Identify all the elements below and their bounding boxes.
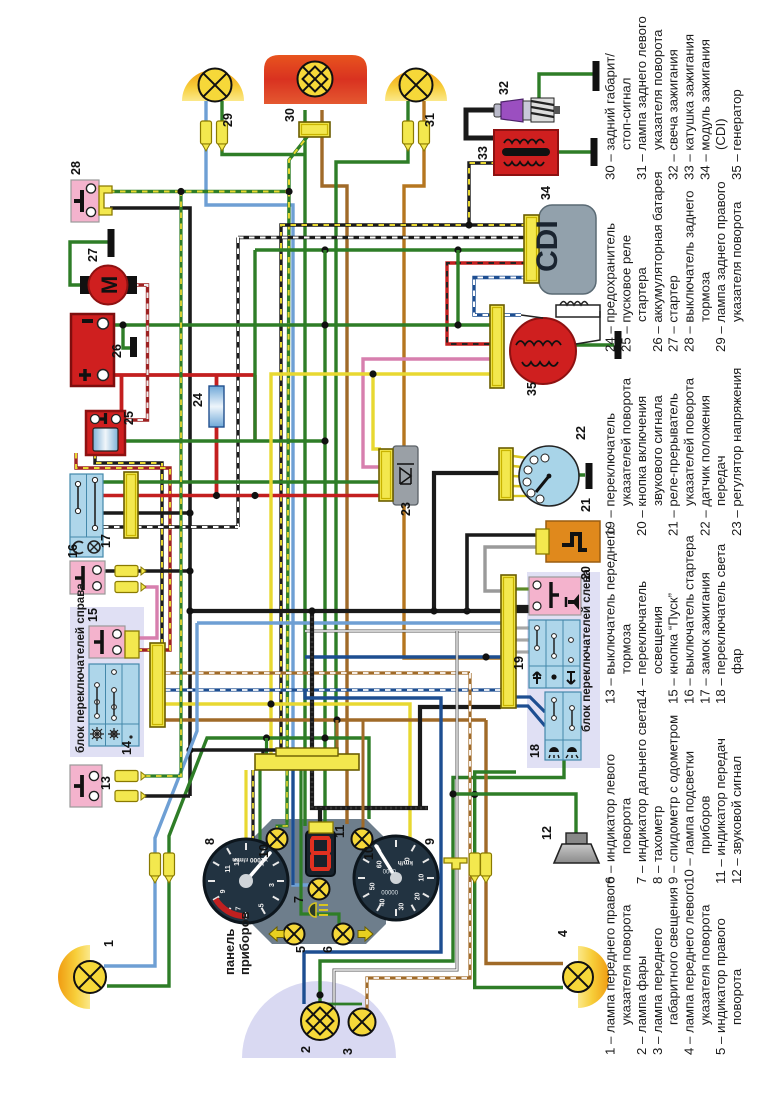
svg-text:8 – тахометр: 8 – тахометр [650,806,665,884]
svg-text:CDI: CDI [531,220,564,272]
svg-text:поворота: поворота [729,968,744,1025]
svg-text:передач: передач [713,456,728,506]
svg-text:21 – реле-прерыватель: 21 – реле-прерыватель [666,393,681,536]
svg-text:2 – лампа фары: 2 – лампа фары [634,956,649,1055]
svg-text:km/h: km/h [398,859,413,866]
svg-text:указателя поворота: указателя поворота [729,201,744,322]
svg-text:33 – катушка зажигания: 33 – катушка зажигания [682,34,697,180]
svg-text:21: 21 [579,498,593,512]
svg-text:7 – индикатор дальнего света: 7 – индикатор дальнего света [634,701,649,884]
svg-text:габаритного свещения: габаритного свещения [666,887,681,1025]
svg-text:10: 10 [257,844,271,858]
svg-text:17 – замок зажигания: 17 – замок зажигания [697,572,712,704]
svg-text:31 – лампа заднего левого: 31 – лампа заднего левого [634,16,649,180]
svg-text:9: 9 [423,838,437,845]
svg-text:18 – переключатель света: 18 – переключатель света [713,543,728,704]
svg-text:9: 9 [220,889,227,893]
svg-text:стартера: стартера [634,267,649,322]
svg-text:25 – пусковое реле: 25 – пусковое реле [618,235,633,352]
svg-text:3 – лампа переднего: 3 – лампа переднего [650,928,665,1055]
svg-text:24 – предохранитель: 24 – предохранитель [603,223,618,352]
svg-text:12 – звуковой сигнал: 12 – звуковой сигнал [729,756,744,884]
svg-text:13: 13 [99,776,113,790]
svg-text:23 – регулятор напряжения: 23 – регулятор напряжения [729,368,744,536]
svg-text:32: 32 [497,81,511,95]
svg-text:M: M [97,276,122,294]
svg-text:24: 24 [191,393,205,407]
svg-text:звукового сигнала: звукового сигнала [650,395,665,506]
svg-text:7: 7 [292,896,306,903]
svg-text:поворота: поворота [618,797,633,854]
svg-text:26: 26 [110,344,124,358]
svg-text:50: 50 [369,882,376,890]
svg-text:11: 11 [225,865,232,873]
svg-text:панель: панель [222,929,237,975]
svg-text:19: 19 [512,656,526,670]
svg-text:блок переключателей слева: блок переключателей слева [580,569,593,732]
svg-text:31: 31 [423,113,437,127]
svg-text:5: 5 [258,903,265,907]
svg-text:указателей поворота: указателей поворота [682,377,697,506]
svg-text:18: 18 [528,744,542,758]
svg-text:3: 3 [269,883,276,887]
svg-text:16: 16 [66,544,80,558]
svg-text:4 – лампа переднего левого: 4 – лампа переднего левого [682,883,697,1055]
svg-text:22 – датчик положения: 22 – датчик положения [697,395,712,536]
svg-text:1: 1 [102,940,116,947]
svg-text:0000: 0000 [382,867,396,873]
svg-text:11: 11 [333,825,347,838]
svg-text:60: 60 [376,860,383,868]
svg-text:40: 40 [380,898,387,906]
svg-text:7: 7 [235,906,242,910]
svg-text:19 – переключатель: 19 – переключатель [603,413,618,536]
svg-text:20: 20 [579,566,593,580]
svg-text:30: 30 [283,108,297,122]
svg-text:29: 29 [221,113,235,127]
svg-text:20 – кнопка включения: 20 – кнопка включения [634,396,649,536]
svg-text:стоп-сигнал: стоп-сигнал [618,78,633,150]
svg-text:10 – лампа подсветки: 10 – лампа подсветки [682,751,697,884]
svg-text:указателя поворота: указателя поворота [618,904,633,1025]
svg-text:28: 28 [69,161,83,175]
svg-text:указателей поворота: указателей поворота [618,377,633,506]
svg-text:фар: фар [729,648,744,674]
svg-text:15: 15 [86,608,100,622]
svg-text:12: 12 [540,826,554,840]
svg-text:5: 5 [294,946,308,953]
svg-text:28 – выключатель заднего: 28 – выключатель заднего [682,190,697,352]
svg-text:4: 4 [556,930,570,937]
svg-text:00000: 00000 [381,888,398,894]
svg-text:35 – генератор: 35 – генератор [729,89,744,180]
svg-text:10: 10 [362,846,376,860]
svg-text:34: 34 [539,186,553,200]
svg-text:тормоза: тормоза [618,623,633,674]
svg-text:указателя поворота: указателя поворота [697,904,712,1025]
svg-text:6 – индикатор левого: 6 – индикатор левого [603,754,618,884]
svg-text:приборов: приборов [237,911,252,975]
svg-text:13 – выключатель переднего: 13 – выключатель переднего [603,527,618,704]
svg-text:5 – индикатор правого: 5 – индикатор правого [713,918,728,1055]
svg-text:30 – задний габарит/: 30 – задний габарит/ [603,53,618,180]
svg-text:30: 30 [398,903,405,911]
svg-text:3: 3 [341,1048,355,1055]
svg-text:указателя поворота: указателя поворота [650,29,665,150]
svg-text:тормоза: тормоза [697,271,712,322]
svg-text:(CDI): (CDI) [713,119,728,151]
svg-text:11 – индикатор передач: 11 – индикатор передач [713,738,728,884]
svg-text:9 – спидометр с одометром: 9 – спидометр с одометром [666,715,681,884]
svg-text:20: 20 [414,892,421,900]
svg-text:27: 27 [86,248,100,262]
svg-text:23: 23 [399,502,413,516]
svg-text:35: 35 [525,382,539,396]
svg-text:29 – лампа заднего правого: 29 – лампа заднего правого [713,181,728,352]
svg-text:2: 2 [299,1046,313,1053]
svg-text:16 – выключатель стартера: 16 – выключатель стартера [682,535,697,704]
svg-text:17: 17 [99,534,113,548]
svg-text:32 – свеча зажигания: 32 – свеча зажигания [666,49,681,180]
svg-text:27 – стартер: 27 – стартер [666,275,681,352]
svg-text:15 – кнопка “Пуск”: 15 – кнопка “Пуск” [666,593,681,704]
svg-text:8: 8 [203,838,217,845]
svg-text:34 – модуль зажигания: 34 – модуль зажигания [697,39,712,180]
svg-text:освещения: освещения [650,606,665,674]
svg-text:14: 14 [120,741,134,755]
svg-text:6: 6 [321,946,335,953]
svg-text:1 – лампа переднего правого: 1 – лампа переднего правого [603,876,618,1055]
svg-text:14 – переключатель: 14 – переключатель [634,581,649,704]
svg-text:10: 10 [419,874,426,882]
svg-text:25: 25 [122,411,136,425]
svg-text:33: 33 [476,146,490,160]
svg-text:приборов: приборов [697,796,712,854]
svg-text:22: 22 [574,426,588,440]
svg-text:26 – аккумуляторная батарея: 26 – аккумуляторная батарея [650,172,665,352]
